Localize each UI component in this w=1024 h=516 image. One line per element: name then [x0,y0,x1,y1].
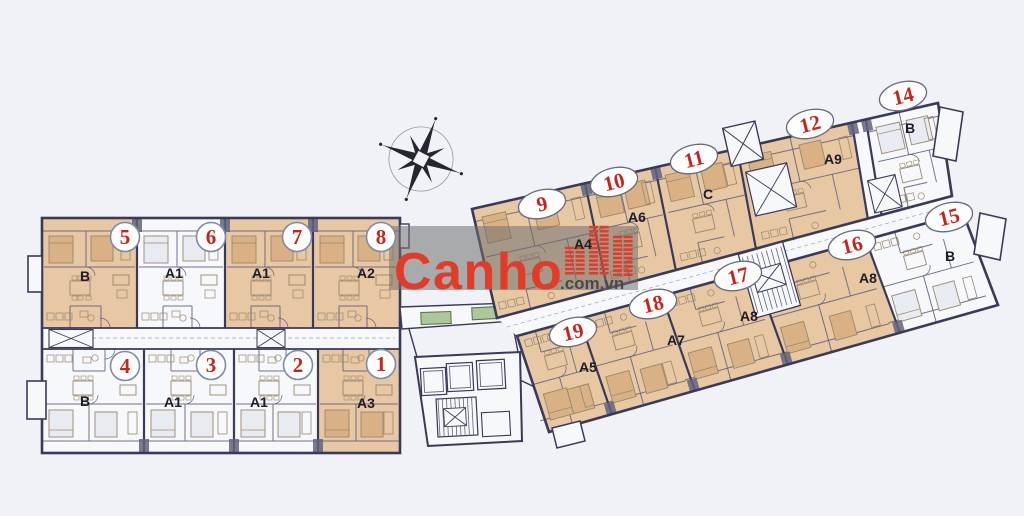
svg-text:C: C [703,186,713,202]
svg-text:1: 1 [376,352,387,376]
svg-text:.com.vn: .com.vn [560,274,624,293]
svg-text:B: B [80,393,90,409]
svg-text:7: 7 [292,225,303,249]
svg-text:A2: A2 [357,265,375,281]
svg-text:A1: A1 [252,265,270,281]
svg-text:B: B [945,248,955,264]
svg-text:Canho: Canho [394,243,563,301]
svg-text:A8: A8 [859,270,877,286]
svg-text:B: B [80,268,90,284]
svg-text:A1: A1 [165,265,183,281]
svg-text:A1: A1 [250,394,268,410]
svg-text:4: 4 [120,354,131,378]
svg-text:2: 2 [293,353,304,377]
svg-text:8: 8 [376,225,387,249]
svg-text:A4: A4 [574,236,592,252]
svg-text:A6: A6 [628,209,646,225]
svg-text:6: 6 [206,225,217,249]
svg-text:3: 3 [206,353,217,377]
svg-text:A1: A1 [164,394,182,410]
svg-text:A8: A8 [740,308,758,324]
svg-text:A7: A7 [667,332,685,348]
svg-text:A9: A9 [824,151,842,167]
svg-text:A5: A5 [579,359,597,375]
svg-text:A3: A3 [357,395,375,411]
svg-text:B: B [905,120,915,136]
svg-text:5: 5 [120,225,131,249]
